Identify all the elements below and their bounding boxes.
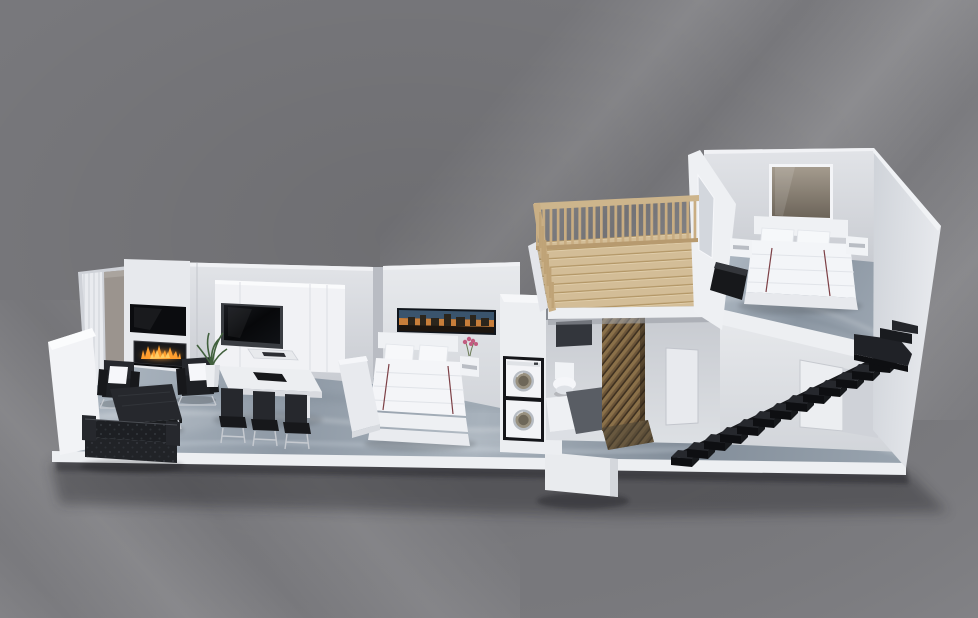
duvet (370, 358, 466, 416)
door-glass (518, 376, 528, 386)
stacked-washer-dryer (503, 356, 544, 442)
wall-mirror (769, 164, 833, 221)
apartment-3d-render (0, 0, 978, 618)
master-bed (738, 216, 862, 314)
control-display (534, 363, 538, 365)
duvet (746, 240, 856, 298)
bathroom-block-shade (610, 459, 618, 497)
door-outline (666, 348, 698, 425)
bathroom-block-front (545, 452, 618, 497)
loft-front-fascia (548, 306, 716, 319)
render-canvas (0, 0, 978, 618)
city-skyline-artwork (397, 308, 496, 335)
mosaic-edge-shade (640, 310, 645, 428)
sofa-tufting (85, 419, 177, 463)
tufted-sofa (80, 415, 184, 473)
mosaic-shower-screen (602, 310, 645, 431)
media-cabinet (215, 280, 345, 373)
door-glass (518, 415, 528, 425)
